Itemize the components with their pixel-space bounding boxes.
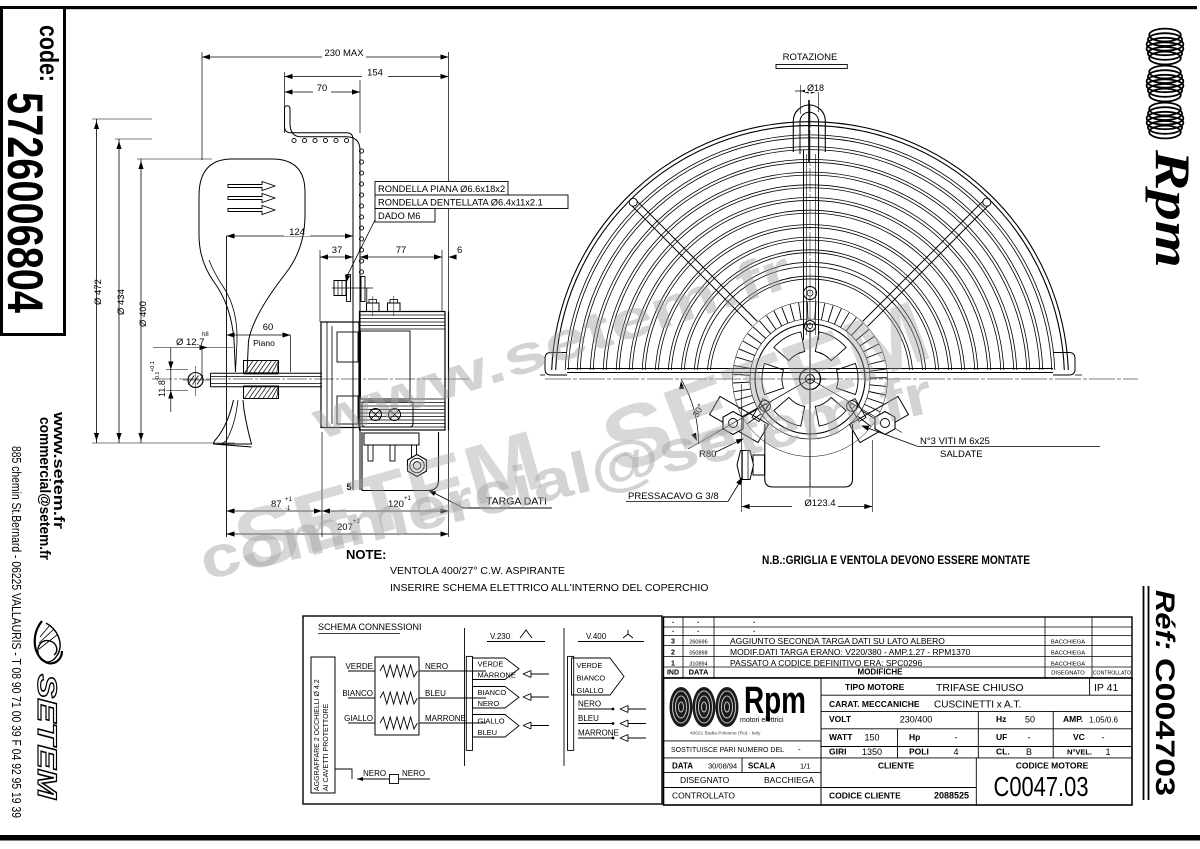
svg-text:AMP.: AMP. (1063, 714, 1083, 724)
svg-text:-0.1: -0.1 (155, 372, 161, 381)
svg-text:CONTROLLATO: CONTROLLATO (1093, 671, 1131, 677)
svg-text:CLIENTE: CLIENTE (878, 761, 915, 771)
svg-text:2: 2 (671, 650, 675, 657)
svg-text:Ø 400: Ø 400 (138, 301, 149, 327)
svg-text:PRESSACAVO G 3/8: PRESSACAVO G 3/8 (628, 491, 719, 502)
svg-text:70: 70 (317, 83, 328, 94)
svg-text:VENTOLA 400/27° C.W. ASPIRANT: VENTOLA 400/27° C.W. ASPIRANTE (390, 565, 565, 577)
svg-text:AI CAVETTI PROTETTORE: AI CAVETTI PROTETTORE (323, 703, 330, 791)
svg-text:Ø 472: Ø 472 (93, 279, 104, 305)
svg-text:6: 6 (457, 245, 462, 256)
svg-text:.: . (672, 625, 674, 634)
svg-text:154: 154 (367, 68, 383, 79)
svg-text:MODIF.DATI TARGA ERANO: V220/3: MODIF.DATI TARGA ERANO: V220/380 - AMP.1… (730, 647, 971, 657)
svg-text:ROTAZIONE: ROTAZIONE (783, 52, 838, 63)
svg-text:BACCHIEGA: BACCHIEGA (1051, 651, 1085, 657)
svg-text:NERO: NERO (578, 700, 601, 709)
svg-text:WATT: WATT (829, 732, 853, 742)
svg-text:BACCHIEGA: BACCHIEGA (1051, 640, 1085, 646)
svg-text:SALDATE: SALDATE (940, 449, 983, 460)
svg-text:37: 37 (332, 245, 343, 256)
svg-text:CL.: CL. (996, 747, 1010, 757)
svg-text:NERO: NERO (478, 699, 500, 708)
svg-text:2088525: 2088525 (934, 791, 969, 801)
svg-text:.: . (697, 616, 699, 625)
svg-text:DATA: DATA (689, 668, 709, 677)
svg-text:BIANCO: BIANCO (577, 673, 606, 682)
svg-text:NERO: NERO (425, 662, 448, 671)
svg-text:CODICE CLIENTE: CODICE CLIENTE (829, 791, 901, 801)
svg-text:UF: UF (996, 732, 1007, 742)
svg-text:260696: 260696 (689, 640, 707, 646)
svg-text:CONTROLLATO: CONTROLLATO (672, 791, 735, 801)
svg-text:commercial@setem.fr: commercial@setem.fr (36, 417, 53, 560)
svg-text:GIALLO: GIALLO (478, 717, 505, 726)
svg-text:VOLT: VOLT (829, 714, 852, 724)
svg-text:230/400: 230/400 (900, 715, 933, 725)
svg-text:SOSTITUISCE PARI NUMERO DEL: SOSTITUISCE PARI NUMERO DEL (671, 747, 784, 754)
svg-text:BLEU: BLEU (578, 714, 599, 723)
svg-text:-: - (1028, 733, 1031, 743)
svg-text:DATA: DATA (672, 762, 693, 771)
svg-text:MARRONE: MARRONE (578, 729, 619, 738)
svg-text:AGGRAFFARE 2 OCCHIELLI Ø 4.2: AGGRAFFARE 2 OCCHIELLI Ø 4.2 (314, 679, 321, 791)
svg-text:BACCHIEGA: BACCHIEGA (1051, 662, 1085, 668)
svg-text:NERO: NERO (402, 769, 425, 778)
svg-text:1: 1 (1105, 747, 1110, 757)
svg-text:GIALLO: GIALLO (577, 686, 604, 695)
svg-text:1/1: 1/1 (800, 762, 810, 771)
svg-text:Rpm: Rpm (1145, 149, 1200, 268)
svg-text:-: - (1102, 733, 1105, 743)
svg-text:Rpm: Rpm (744, 680, 806, 722)
svg-text:N°3 VITI M 6x25: N°3 VITI M 6x25 (920, 436, 990, 447)
svg-text:NERO: NERO (363, 769, 386, 778)
svg-text:IP 41: IP 41 (1094, 682, 1118, 694)
svg-text:CODICE MOTORE: CODICE MOTORE (1016, 761, 1089, 771)
svg-text:VC: VC (1073, 732, 1085, 742)
svg-text:5726006804: 5726006804 (0, 92, 53, 313)
svg-text:SCALA: SCALA (748, 762, 776, 771)
svg-text:C004703: C004703 (1150, 658, 1180, 796)
svg-text:RONDELLA PIANA Ø6.6x18x2: RONDELLA PIANA Ø6.6x18x2 (378, 184, 505, 194)
svg-text:50: 50 (1025, 715, 1035, 725)
svg-text:Ø123.4: Ø123.4 (804, 498, 835, 509)
svg-text:Ø18: Ø18 (807, 83, 824, 93)
svg-text:BLEU: BLEU (478, 728, 498, 737)
svg-text:885 chemin St.Bernard - 0622: 885 chemin St.Bernard - 06225 VALLAURIS … (9, 446, 24, 818)
svg-text:.: . (753, 625, 755, 634)
svg-text:1: 1 (671, 661, 675, 668)
svg-text:VERDE: VERDE (577, 661, 603, 670)
svg-text:60: 60 (263, 322, 274, 333)
svg-text:motori elettrici: motori elettrici (740, 717, 784, 724)
svg-text:VERDE: VERDE (345, 662, 373, 671)
svg-text:+0.1: +0.1 (150, 361, 156, 372)
svg-text:VERDE: VERDE (478, 660, 504, 669)
svg-text:-: - (955, 733, 958, 743)
svg-text:BIANCO: BIANCO (342, 689, 373, 698)
svg-text:BACCHIEGA: BACCHIEGA (764, 775, 814, 785)
svg-text:GIRI: GIRI (829, 747, 846, 757)
svg-text:C0047.03: C0047.03 (994, 771, 1089, 802)
svg-text:TIPO MOTORE: TIPO MOTORE (845, 682, 905, 692)
svg-text:.: . (697, 625, 699, 634)
svg-text:SCHEMA CONNESSIONI: SCHEMA CONNESSIONI (318, 622, 422, 632)
svg-text:SETEM: SETEM (32, 674, 62, 800)
svg-text:N.B.:GRIGLIA E VENTOLA DEVONO: N.B.:GRIGLIA E VENTOLA DEVONO ESSERE MON… (762, 555, 1030, 567)
svg-text:Ø 434: Ø 434 (116, 289, 127, 315)
svg-text:AGGIUNTO SECONDA TARGA DATI SU: AGGIUNTO SECONDA TARGA DATI SU LATO ALBE… (730, 636, 945, 646)
svg-text:PASSATO A CODICE DEFINITIVO ER: PASSATO A CODICE DEFINITIVO ERA: SPC0296 (730, 658, 923, 668)
svg-text:Hz: Hz (996, 714, 1006, 724)
svg-text:40021 Badia Polesine (Ro) - It: 40021 Badia Polesine (Ro) - Italy (690, 731, 761, 737)
svg-text:N°VEL.: N°VEL. (1067, 748, 1092, 757)
svg-text:4: 4 (953, 747, 958, 757)
svg-text:MODIFICHE: MODIFICHE (858, 668, 904, 677)
svg-text:h8: h8 (202, 332, 209, 338)
svg-text:code:: code: (34, 25, 64, 82)
svg-text:77: 77 (396, 245, 407, 256)
svg-text:Réf:: Réf: (1150, 590, 1180, 650)
svg-text:150: 150 (864, 733, 879, 743)
svg-text:POLI: POLI (909, 747, 929, 757)
svg-text:1.05/0.6: 1.05/0.6 (1089, 716, 1118, 725)
svg-text:GIALLO: GIALLO (344, 714, 373, 723)
svg-text:TRIFASE CHIUSO: TRIFASE CHIUSO (936, 682, 1024, 694)
svg-text:CARAT. MECCANICHE: CARAT. MECCANICHE (829, 699, 920, 709)
svg-text:CUSCINETTI x A.T.: CUSCINETTI x A.T. (934, 700, 1021, 711)
svg-text:050898: 050898 (689, 651, 707, 657)
svg-text:30/08/94: 30/08/94 (708, 762, 737, 771)
svg-text:DADO M6: DADO M6 (378, 211, 420, 221)
svg-text:-: - (798, 745, 801, 754)
svg-text:V.400: V.400 (586, 632, 607, 641)
svg-text:IND: IND (667, 670, 679, 677)
svg-text:V.230: V.230 (490, 632, 511, 641)
svg-text:Hp: Hp (909, 732, 920, 742)
svg-text:DISEGNATO: DISEGNATO (680, 775, 730, 785)
svg-text:Piano: Piano (253, 338, 275, 348)
svg-text:11.8: 11.8 (157, 380, 167, 397)
svg-text:BIANCO: BIANCO (478, 688, 507, 697)
svg-text:INSERIRE SCHEMA ELETTRICO ALL': INSERIRE SCHEMA ELETTRICO ALL'INTERNO DE… (390, 582, 708, 594)
svg-text:MARRONE: MARRONE (478, 670, 516, 679)
svg-text:230 MAX: 230 MAX (324, 48, 364, 59)
svg-text:DISEGNATO: DISEGNATO (1051, 671, 1085, 677)
svg-text:.: . (672, 616, 674, 625)
svg-text:3: 3 (671, 639, 675, 646)
svg-text:MARRONE: MARRONE (425, 714, 466, 723)
svg-text:BLEU: BLEU (425, 689, 446, 698)
svg-text:RONDELLA DENTELLATA Ø6.4x11x2.: RONDELLA DENTELLATA Ø6.4x11x2.1 (378, 198, 543, 208)
svg-text:1350: 1350 (862, 747, 882, 757)
svg-text:B: B (1026, 747, 1032, 757)
svg-text:.: . (753, 616, 755, 625)
